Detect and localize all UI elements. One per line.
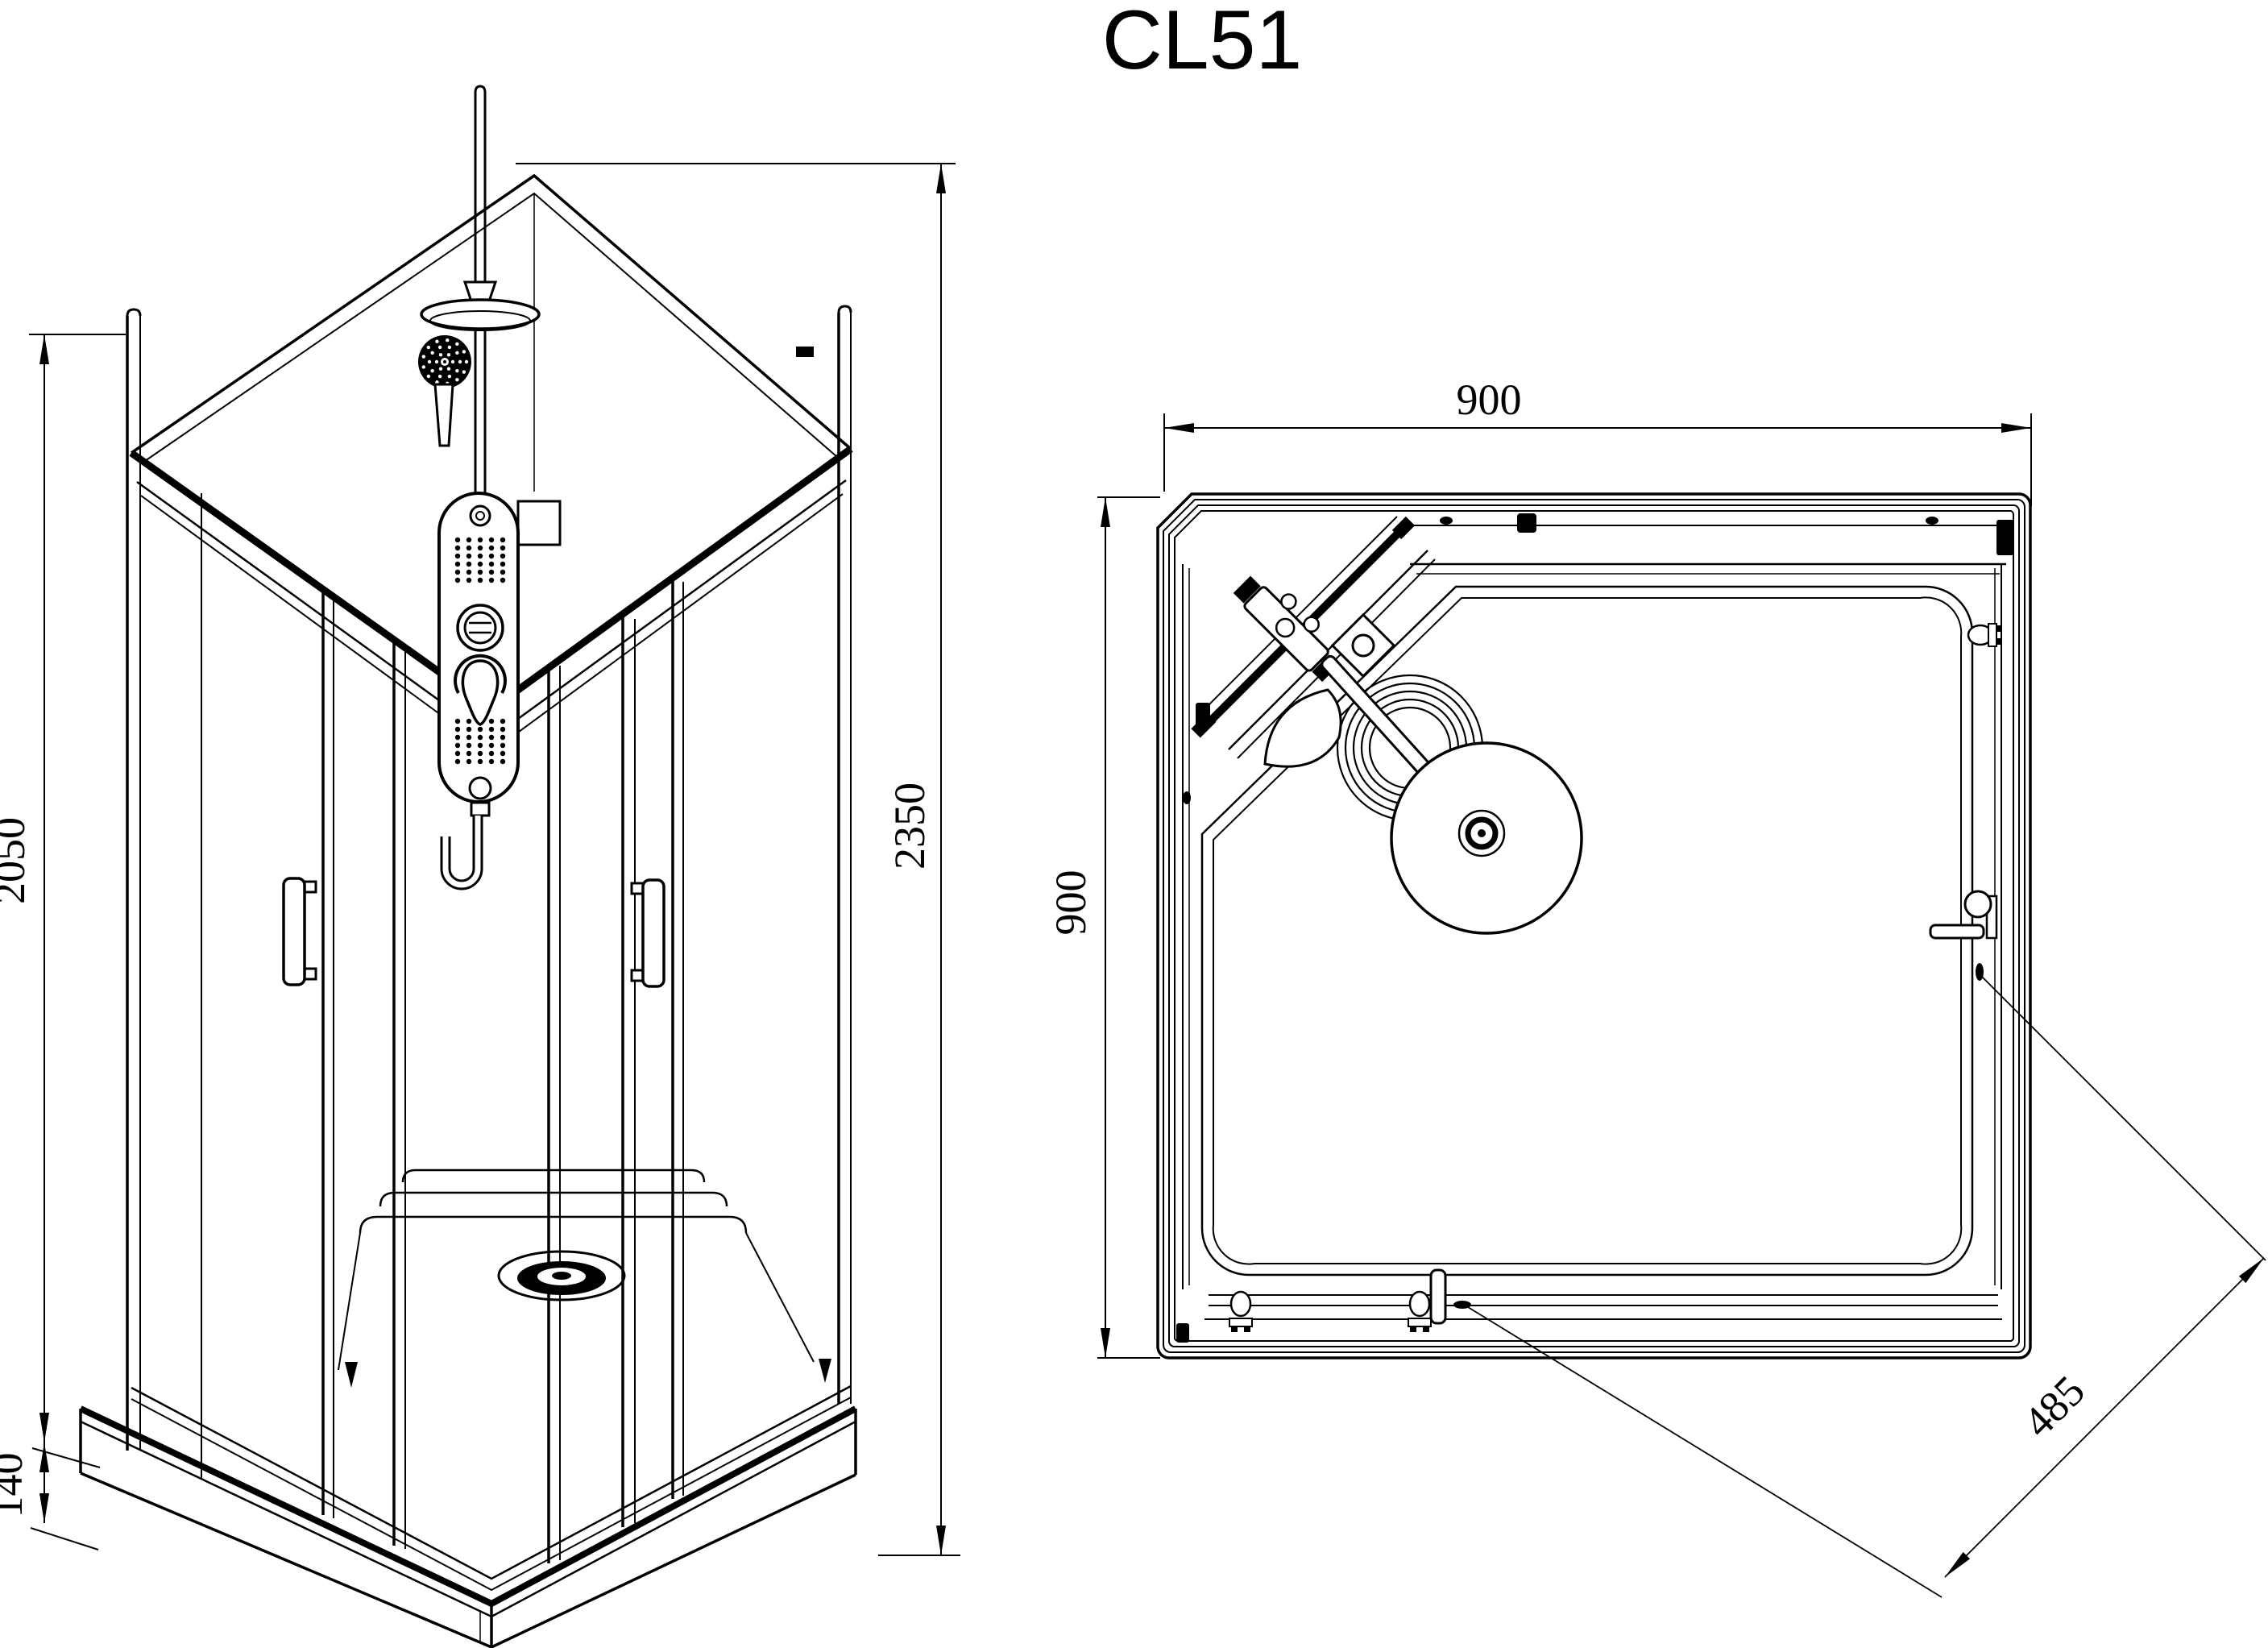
arrow-icon <box>1942 1552 1970 1580</box>
jet-dot <box>455 546 460 550</box>
jet-dot <box>478 751 483 756</box>
arrow-icon <box>936 164 946 193</box>
jet-dot <box>466 562 471 567</box>
jet-dot <box>489 743 494 748</box>
door-handle-right <box>632 880 664 986</box>
shower-cabin-drawing: 2050 140 2350 900 <box>0 0 2268 1648</box>
elevation-view <box>81 86 856 1647</box>
spray-dot <box>439 367 442 370</box>
spray-dot <box>439 353 442 356</box>
shower-hose <box>446 803 489 885</box>
arrow-icon <box>39 1493 49 1523</box>
jet-dot <box>500 719 505 724</box>
jet-dot <box>466 735 471 740</box>
jet-dot <box>466 578 471 583</box>
plan-view <box>1158 494 2030 1358</box>
dimension-overall-height: 2350 <box>516 164 960 1555</box>
dimension-width: 900 <box>1164 376 2031 506</box>
dimension-depth: 900 <box>1047 497 1160 1358</box>
dimensions: 2050 140 2350 900 <box>0 164 2267 1597</box>
hand-shower <box>418 335 471 446</box>
spray-dot <box>455 369 458 372</box>
jet-dot <box>478 538 483 542</box>
jet-dot <box>455 759 460 764</box>
jet-dot <box>500 751 505 756</box>
spray-dot <box>422 355 425 358</box>
spray-dot <box>438 346 442 349</box>
door-guide-left <box>345 1362 358 1388</box>
jet-dot <box>489 546 494 550</box>
dim-label-2350: 2350 <box>885 782 934 870</box>
roller <box>1968 624 2002 646</box>
spray-dot <box>438 375 442 378</box>
dimension-cabin-height: 2050 <box>0 334 126 1467</box>
spray-dot <box>448 375 451 378</box>
jet-dot <box>455 727 460 732</box>
spray-dot <box>428 360 431 363</box>
jet-dot <box>455 562 460 567</box>
dimension-corner-entry: 485 <box>1468 977 2267 1597</box>
jet-dot <box>455 578 460 583</box>
jet-dot <box>455 743 460 748</box>
plan-door-handle-bottom <box>1431 1270 1471 1323</box>
spray-dot <box>462 370 466 373</box>
arrow-icon <box>1101 1328 1110 1358</box>
jet-dot <box>500 743 505 748</box>
door-guide-right <box>819 1359 831 1383</box>
spray-dot <box>447 353 450 356</box>
shower-tray-base <box>81 1170 856 1647</box>
spray-dot <box>447 367 450 370</box>
spray-dot <box>427 375 430 378</box>
jet-dot <box>500 562 505 567</box>
arrow-icon <box>2001 423 2031 433</box>
jet-dot <box>466 751 471 756</box>
jet-dot <box>478 562 483 567</box>
jet-dot <box>489 759 494 764</box>
jet-dot <box>489 727 494 732</box>
jet-dot <box>500 735 505 740</box>
jet-dot <box>489 554 494 558</box>
jet-dot <box>466 743 471 748</box>
jet-dot <box>500 538 505 542</box>
jet-dot <box>466 554 471 558</box>
jet-dot <box>455 735 460 740</box>
spray-dot <box>455 378 458 381</box>
spray-dot <box>462 350 466 353</box>
spray-dot <box>451 360 454 363</box>
jet-dot <box>489 570 494 575</box>
jet-dot <box>500 546 505 550</box>
jet-dot <box>489 562 494 567</box>
jet-dot <box>500 570 505 575</box>
spray-dot <box>435 340 438 343</box>
shower-head-top <box>1391 743 1582 933</box>
technical-drawing-page: 2050 140 2350 900 <box>0 0 2268 1648</box>
control-panel <box>439 493 518 802</box>
plan-door-handle-right <box>1930 891 1996 981</box>
jet-dot <box>466 538 471 542</box>
jet-dot <box>478 578 483 583</box>
spray-dot <box>430 351 433 355</box>
spray-dot <box>455 342 458 346</box>
jet-dot <box>455 554 460 558</box>
spray-dot <box>458 360 462 363</box>
panel-bracket <box>518 501 560 545</box>
plan-tray <box>1202 587 1972 1275</box>
jet-dot <box>489 538 494 542</box>
arrow-icon <box>2239 1255 2267 1283</box>
jet-dot <box>500 727 505 732</box>
spray-dot <box>427 346 430 349</box>
dimension-tray-height: 140 <box>0 1443 98 1550</box>
jet-dot <box>466 759 471 764</box>
spray-hub-center <box>443 360 446 363</box>
jet-dot <box>455 719 460 724</box>
spray-dot <box>435 360 438 363</box>
spray-dot <box>422 365 425 368</box>
spray-dot <box>430 369 433 372</box>
hand-shower-grip <box>435 384 453 446</box>
jet-dot <box>478 735 483 740</box>
dim-label-900-width: 900 <box>1457 376 1522 424</box>
door-handle-left <box>284 878 316 985</box>
spray-dot <box>455 351 458 355</box>
jet-dot <box>478 743 483 748</box>
jet-dot <box>466 727 471 732</box>
jet-dot <box>466 546 471 550</box>
dim-label-2050: 2050 <box>0 817 34 904</box>
jet-dot <box>500 578 505 583</box>
jet-dot <box>478 727 483 732</box>
dim-label-485: 485 <box>2013 1366 2094 1447</box>
jet-dot <box>489 751 494 756</box>
drawing-title: CL51 <box>1102 0 1303 87</box>
roof-clip <box>796 347 814 357</box>
jet-dot <box>478 759 483 764</box>
drain <box>499 1252 624 1300</box>
spray-dot <box>448 346 451 349</box>
arrow-icon <box>936 1526 946 1555</box>
jet-dot <box>455 570 460 575</box>
spray-dot <box>446 338 449 342</box>
jet-dot <box>500 554 505 558</box>
jet-dot <box>455 751 460 756</box>
rain-shower-head <box>421 300 539 330</box>
jet-dot <box>489 578 494 583</box>
dim-label-140: 140 <box>0 1453 31 1518</box>
jet-dot <box>478 546 483 550</box>
arrow-icon <box>39 1443 49 1472</box>
jet-dot <box>478 570 483 575</box>
door-rollers <box>1229 624 2002 1332</box>
jet-dot <box>478 554 483 558</box>
roller <box>1408 1292 1431 1332</box>
arrow-icon <box>1164 423 1194 433</box>
roller <box>1229 1292 1252 1332</box>
jet-dot <box>500 759 505 764</box>
arrow-icon <box>1101 497 1110 527</box>
arrow-icon <box>39 334 49 364</box>
jet-dot <box>466 719 471 724</box>
jet-dot <box>489 719 494 724</box>
spray-dot <box>465 360 468 363</box>
jet-dot <box>466 570 471 575</box>
jet-dot <box>455 538 460 542</box>
dim-label-900-depth: 900 <box>1047 870 1095 936</box>
jet-dot <box>489 735 494 740</box>
arrow-icon <box>39 1413 49 1443</box>
